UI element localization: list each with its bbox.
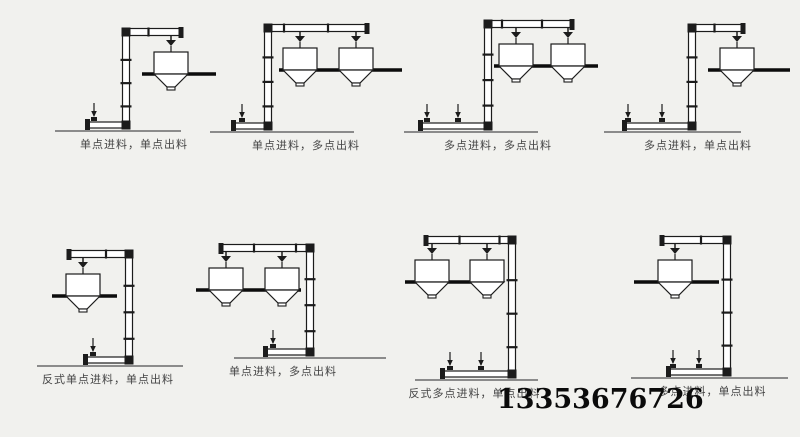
elevator-diagram — [405, 228, 600, 382]
diagram-4: 多点进料，单点出料 — [600, 16, 796, 153]
diagram-8: 多点进料，单点出料 — [612, 228, 797, 399]
elevator-diagram — [600, 16, 796, 134]
elevator-diagram — [196, 236, 386, 360]
diagram-3: 多点进料，多点出料 — [398, 12, 598, 153]
diagram-sheet: 13353676726 单点进料，单点出料单点进料，多点出料多点进料，多点出料多… — [0, 0, 800, 437]
diagram-5: 反式单点进料，单点出料 — [28, 242, 200, 387]
diagram-1: 单点进料，单点出料 — [50, 20, 218, 152]
elevator-diagram — [50, 20, 218, 133]
elevator-diagram — [398, 12, 598, 134]
diagram-7: 反式多点进料，单点出料 — [405, 228, 600, 401]
elevator-diagram — [28, 242, 200, 368]
diagram-caption: 单点进料，单点出料 — [50, 136, 218, 152]
elevator-diagram — [210, 16, 402, 134]
diagram-caption: 反式单点进料，单点出料 — [22, 371, 194, 387]
elevator-diagram — [612, 228, 797, 380]
diagram-2: 单点进料，多点出料 — [210, 16, 402, 153]
diagram-caption: 单点进料，多点出料 — [188, 363, 378, 379]
phone-number: 13353676726 — [497, 384, 704, 415]
diagram-caption: 单点进料，多点出料 — [210, 137, 402, 153]
diagram-6: 单点进料，多点出料 — [196, 236, 386, 379]
diagram-caption: 多点进料，单点出料 — [600, 137, 796, 153]
diagram-caption: 多点进料，多点出料 — [398, 137, 598, 153]
